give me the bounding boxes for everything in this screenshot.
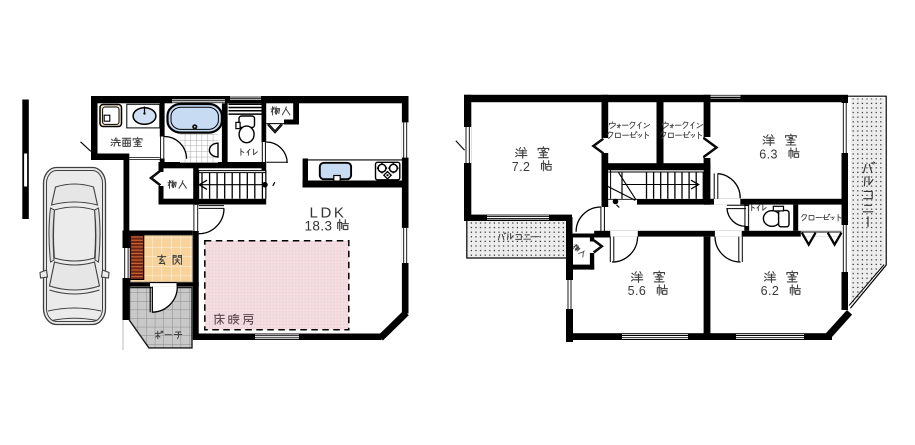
svg-text:6.2: 6.2 [761,284,780,298]
svg-text:18.3: 18.3 [305,219,333,234]
svg-text:5.6: 5.6 [628,284,647,298]
svg-text:7.2: 7.2 [512,160,531,174]
svg-text:6.3: 6.3 [759,147,778,161]
